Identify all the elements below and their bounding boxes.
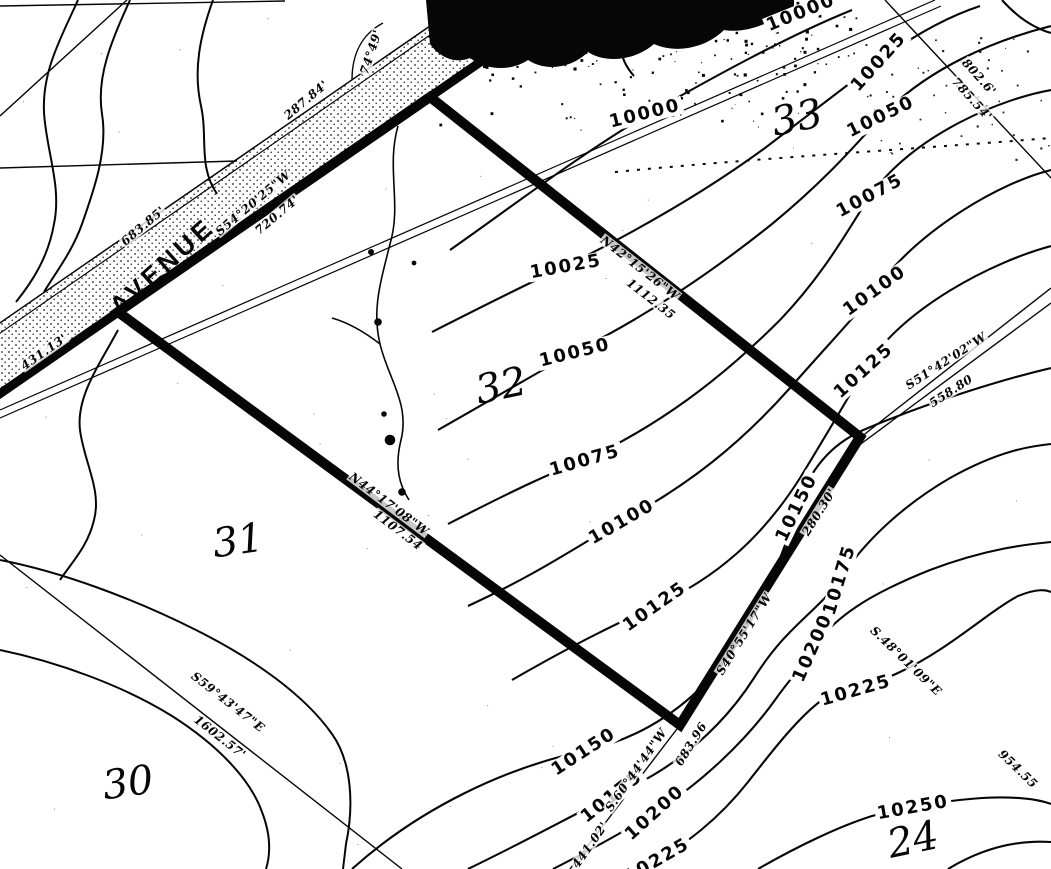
bearing-label: S51°42'02"W [903,330,990,392]
bearing-label: 683.85' [118,204,168,249]
contour-label: 10050 [843,92,920,142]
contour-label: 10075 [546,442,625,480]
bearing-label: S40°55'17"W [714,590,775,677]
section-label: 31 [210,518,266,565]
contour-label: 10025 [527,251,606,282]
contour-label: 10100 [839,261,912,321]
contour-label: 10225 [817,672,896,710]
bearing-label: 74°49' [358,27,384,76]
road-label: AVENUE [105,213,219,320]
contour-label: 10125 [618,578,691,637]
labels-layer: 1000010000100251002510050100501007510075… [0,0,1051,869]
contour-label: 10000 [606,96,685,132]
contour-label: 10125 [830,339,899,404]
section-label: 30 [100,760,156,807]
contour-label: 10000 [762,0,840,36]
contour-label: 10050 [536,335,615,371]
section-label: 24 [884,815,942,865]
contour-label: 10100 [584,495,659,549]
section-label: 32 [472,361,530,411]
section-label: 33 [768,93,826,143]
contour-label: 10175 [820,541,860,620]
contour-label: 10150 [547,724,621,781]
contour-label: 10025 [847,28,912,97]
survey-map: 1000010000100251002510050100501007510075… [0,0,1051,869]
contour-label: 10200 [789,609,837,686]
bearing-label: 287.84' [281,78,331,123]
contour-label: 10075 [832,170,908,222]
bearing-label: 683.96 [672,719,709,769]
bearing-label: 558.80 [926,372,975,410]
bearing-label: 954.55 [996,747,1041,791]
bearing-label: 431.13' [18,331,70,372]
